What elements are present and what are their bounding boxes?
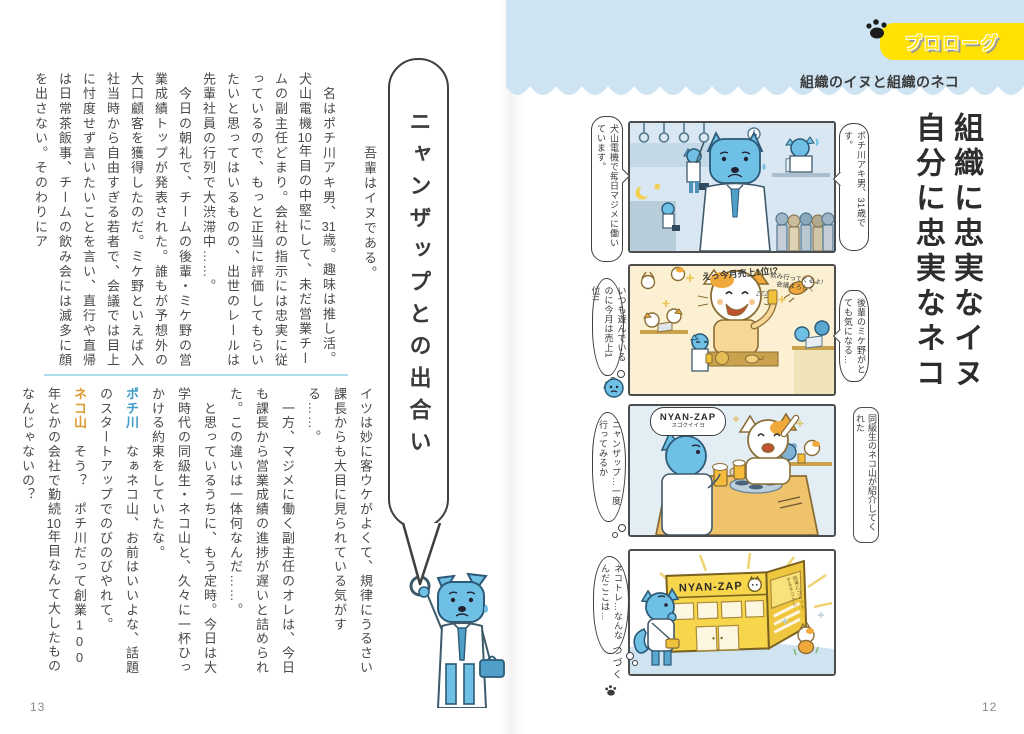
panel-4-illustration: NYAN-ZAP <box>630 551 834 674</box>
panel-3-right-caption-text: 同級生のネコ山が紹介してくれた <box>854 414 878 536</box>
section-heading-bubble: ニャンザップとの出合い <box>388 58 449 529</box>
panel-2-zzz-text: ZZZ <box>755 291 770 298</box>
thought-dot <box>632 660 638 666</box>
section-heading: ニャンザップとの出合い <box>403 110 435 527</box>
body-text-upper: 名はポチ川アキ男、31歳。趣味は推し活。犬山電機10年目の中堅にして、未だ営業チ… <box>48 72 340 374</box>
panel-2-right-bubble: 後輩のミケ野がとても気になる… <box>839 290 869 382</box>
section-divider <box>44 374 348 376</box>
thought-dot <box>626 652 634 660</box>
intro-line: 吾輩はイヌである。 <box>360 146 379 281</box>
panel-3-left-thought-bubble: ニャンザップ…一度行ってみるか <box>592 412 626 522</box>
chapter-subtitle: 組織のイヌと組織のネコ <box>800 72 959 92</box>
panel-4-left-bubble-text: ネコトレ…なんなんだここは… <box>598 564 624 646</box>
panel-1-right-bubble: ポチ川アキ男、31歳です。 <box>839 123 869 251</box>
panel-4-left-bubble: ネコトレ…なんなんだここは… <box>593 556 629 654</box>
to-be-continued-label: つづく <box>608 645 623 681</box>
main-title-line2: 自分に忠実なネコ <box>908 112 946 412</box>
panel-2-left-thought-bubble: いつも遊んでいるのに今月は売上1位!! <box>592 278 624 376</box>
paw-icon <box>864 17 890 41</box>
paw-icon-small <box>604 684 618 697</box>
comic-panel-4: NYAN-ZAP <box>628 549 836 676</box>
panel-3-right-caption: 同級生のネコ山が紹介してくれた <box>853 407 879 543</box>
panel-2-illustration: えっ今月売上1位!? 飲み行ってくるよ! 会議よろしく ZZZ <box>630 266 834 394</box>
panel-1-left-bubble: 犬山電機で毎日マジメに働いています。 <box>591 116 623 262</box>
main-title: 組織に忠実なイヌ 自分に忠実なネコ <box>908 112 984 412</box>
section-bubble-tail <box>399 522 445 592</box>
panel-3-speech-bubble: NYAN-ZAP スゴクイイヨ <box>650 407 726 436</box>
panel-3-left-thought-text: ニャンザップ…一度行ってみるか <box>596 420 622 514</box>
page-number-right: 12 <box>982 700 997 714</box>
prologue-badge: プロローグ <box>880 23 1024 60</box>
comic-panel-1 <box>628 121 836 253</box>
nyan-zap-sublabel: スゴクイイヨ <box>671 423 704 430</box>
thought-dot <box>618 524 626 532</box>
page-number-left: 13 <box>30 700 45 714</box>
main-title-line1: 組織に忠実なイヌ <box>946 112 984 412</box>
comic-panel-2: えっ今月売上1位!? 飲み行ってくるよ! 会議よろしく ZZZ <box>628 264 836 396</box>
thinking-dog-face <box>602 376 626 398</box>
panel-1-left-bubble-text: 犬山電機で毎日マジメに働いています。 <box>594 124 620 254</box>
panel-1-illustration <box>630 123 834 251</box>
panel-2-left-thought-text: いつも遊んでいるのに今月は売上1位!! <box>589 286 628 368</box>
body-text-lower: イツは妙に客ウケがよくて、規律にうるさい課長からも大目に見られている気がする……… <box>60 387 378 679</box>
building-sign-text: NYAN-ZAP <box>679 580 743 594</box>
book-spread: ニャンザップとの出合い 吾輩はイヌである。 名はポチ川アキ男、31歳。趣味は推し… <box>0 0 1024 734</box>
prologue-badge-label: プロローグ <box>905 29 1000 54</box>
panel-1-right-bubble-text: ポチ川アキ男、31歳です。 <box>841 131 867 243</box>
nyan-zap-label: NYAN-ZAP <box>660 413 716 423</box>
thought-dot <box>612 532 618 538</box>
